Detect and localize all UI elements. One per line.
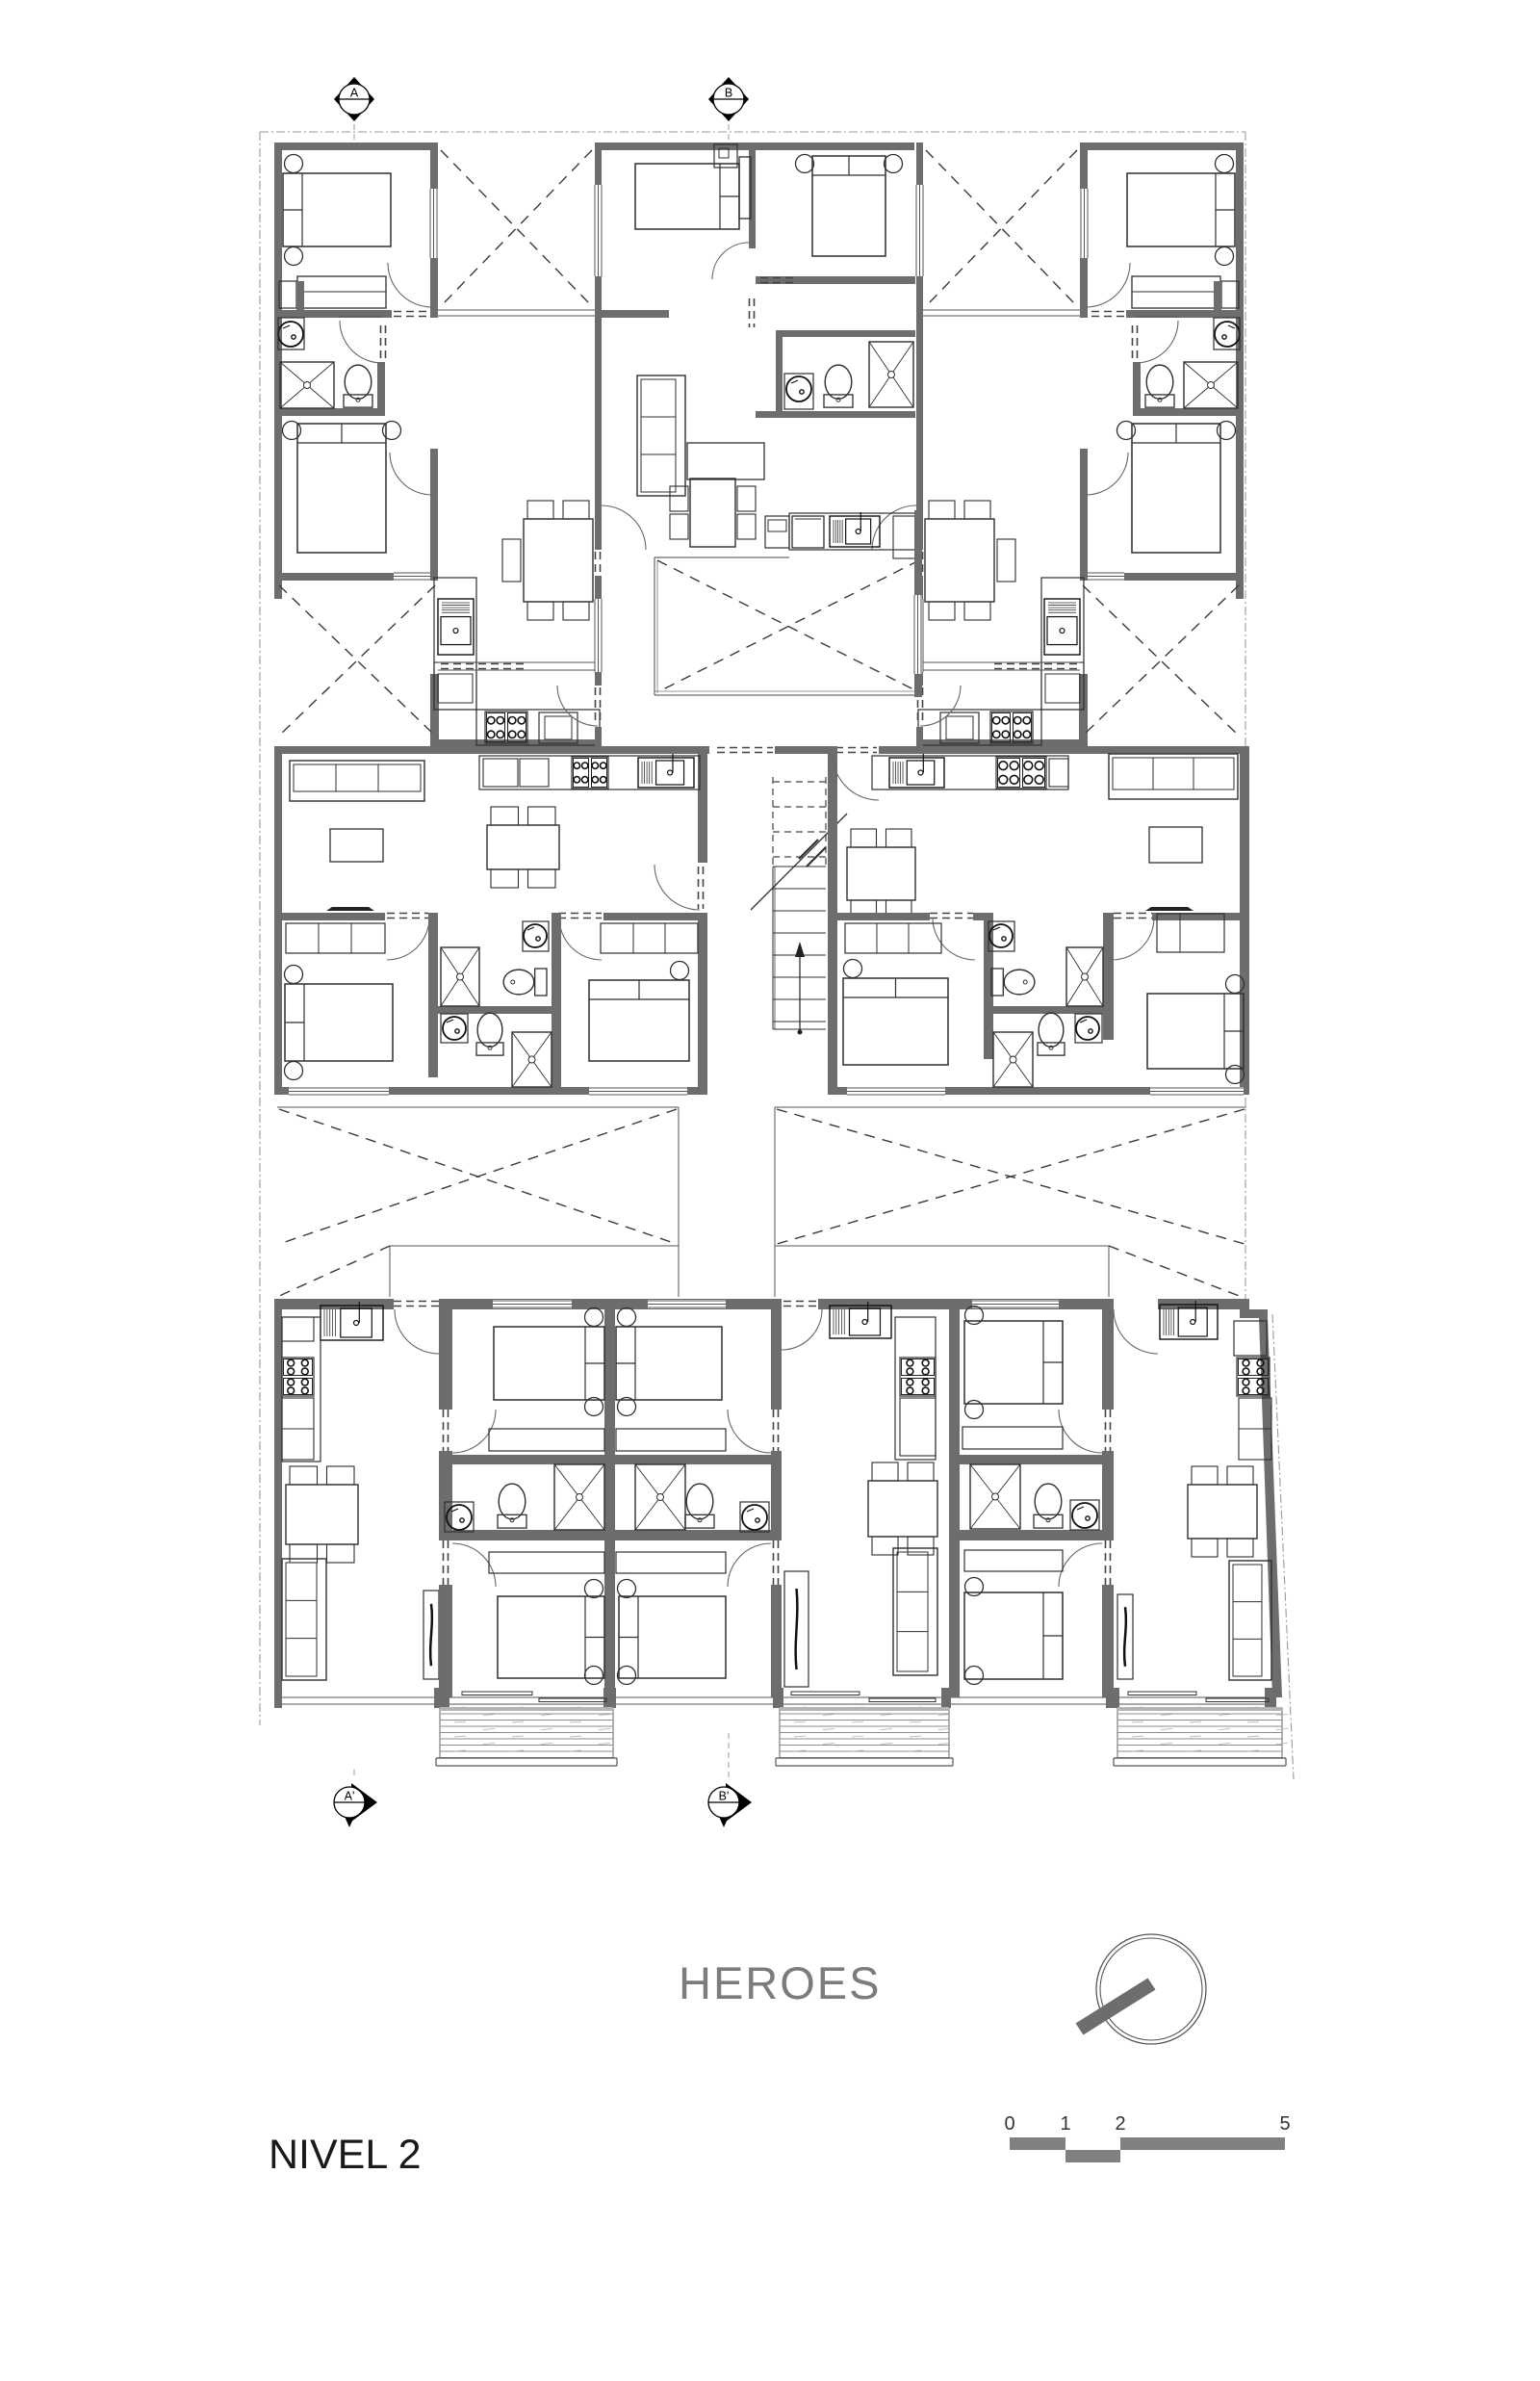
svg-text:A': A' — [345, 1790, 355, 1803]
svg-text:1: 1 — [1060, 2113, 1070, 2135]
svg-text:5: 5 — [1279, 2113, 1290, 2135]
svg-text:HEROES: HEROES — [679, 1957, 882, 2008]
svg-text:NIVEL 2: NIVEL 2 — [269, 2132, 422, 2178]
svg-text:2: 2 — [1115, 2113, 1125, 2135]
svg-text:0: 0 — [1004, 2113, 1014, 2135]
svg-text:B: B — [725, 87, 732, 100]
svg-text:B': B' — [719, 1790, 730, 1803]
svg-text:A: A — [350, 87, 359, 100]
